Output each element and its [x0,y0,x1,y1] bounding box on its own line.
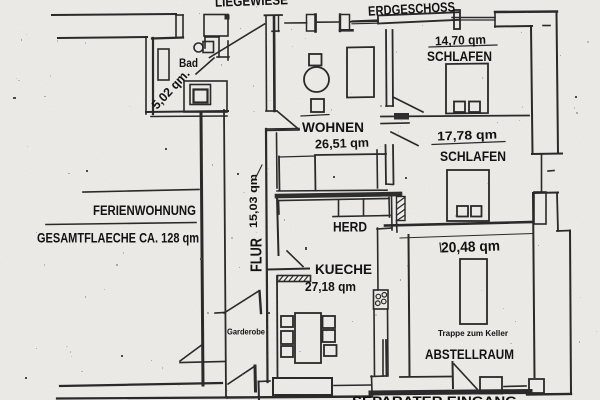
svg-text:17,78 qm: 17,78 qm [437,127,497,143]
svg-text:26,51 qm: 26,51 qm [315,136,369,152]
svg-text:SEPARATER EINGANG: SEPARATER EINGANG [352,395,517,400]
svg-text:SCHLAFEN: SCHLAFEN [427,49,492,64]
svg-text:GESAMTFLAECHE CA. 128 qm: GESAMTFLAECHE CA. 128 qm [37,231,199,246]
svg-text:FERIENWOHNUNG: FERIENWOHNUNG [93,203,196,218]
svg-text:ABSTELLRAUM: ABSTELLRAUM [425,347,514,362]
svg-text:Trappe zum Keller: Trappe zum Keller [438,328,509,338]
svg-text:20,48 qm: 20,48 qm [441,238,501,256]
svg-text:27,18 qm: 27,18 qm [305,279,356,294]
svg-text:HERD: HERD [333,220,367,235]
svg-text:KUECHE: KUECHE [315,261,372,277]
svg-text:14,70 qm: 14,70 qm [435,33,486,49]
svg-text:15,03 qm: 15,03 qm [248,174,260,228]
svg-text:Garderobe: Garderobe [227,327,265,337]
svg-text:FLUR: FLUR [249,238,266,272]
svg-text:SCHLAFEN: SCHLAFEN [440,149,506,164]
svg-text:WOHNEN: WOHNEN [302,120,364,135]
